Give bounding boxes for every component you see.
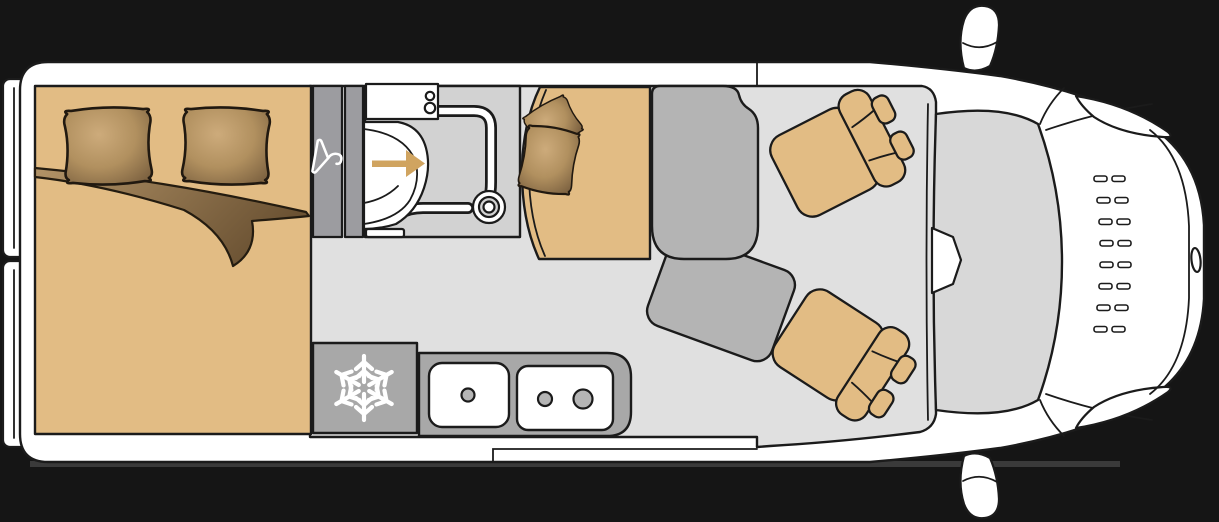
kitchenette	[313, 343, 631, 436]
washbasin	[366, 84, 438, 119]
campervan-floorplan	[0, 0, 1219, 522]
two-burner-hob	[517, 366, 613, 430]
bed-pillow-left	[64, 106, 152, 185]
wing-mirror-bottom	[961, 453, 1000, 518]
wardrobe	[312, 86, 363, 237]
bed-pillow-right	[182, 106, 270, 185]
hob-burner-large	[574, 390, 593, 409]
floorplan-canvas	[0, 0, 1219, 522]
bench-pillow-bottom	[517, 123, 581, 197]
rear-double-bed	[35, 86, 311, 434]
washbasin-tap	[426, 92, 434, 100]
wing-mirror-top	[961, 6, 1000, 71]
hob-burner-small	[538, 392, 552, 406]
washbasin-drain	[425, 103, 435, 113]
bathroom	[364, 84, 520, 237]
wardrobe-cabinet	[313, 86, 342, 237]
side-bench	[517, 87, 650, 259]
wardrobe-wall	[345, 86, 363, 237]
shower-drain	[473, 191, 505, 223]
toilet-base	[366, 229, 404, 237]
sink-drain	[462, 389, 475, 402]
belted-bench-seat	[652, 86, 758, 259]
